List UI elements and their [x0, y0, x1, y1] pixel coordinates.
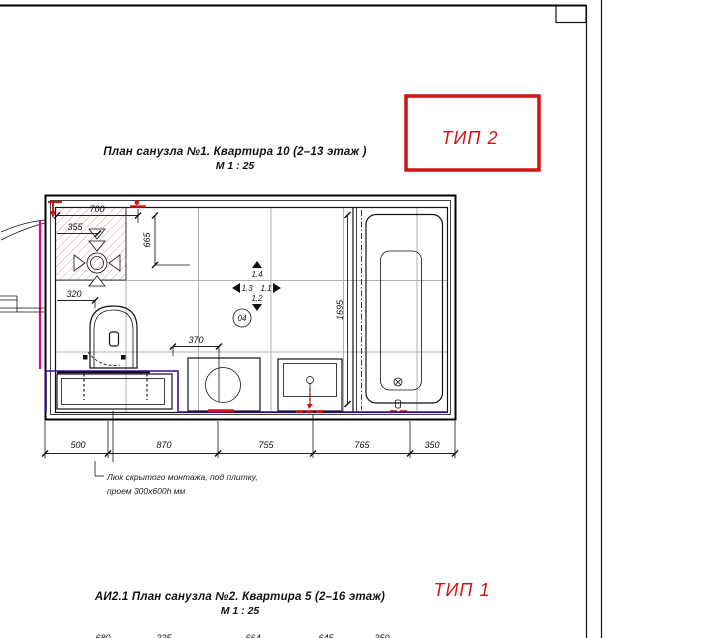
toilet [83, 306, 137, 368]
partial-dim-1: 335 [156, 633, 172, 638]
bottom-dim-350: 350 [424, 440, 439, 450]
left-duct [0, 296, 44, 312]
door-swing [1, 220, 45, 240]
marker-1-1: 1.1 [260, 284, 271, 293]
dim-1695: 1695 [335, 299, 345, 320]
access-hatch-box [57, 372, 172, 409]
node-04-bubble: 04 [233, 309, 251, 327]
type2-badge: ТИП 2 [406, 96, 539, 170]
bottom-dim-765: 765 [354, 440, 370, 450]
bottom-dim-870: 870 [156, 440, 171, 450]
dim-700: 700 [89, 204, 104, 214]
bathtub [366, 215, 443, 412]
node-04-label: 04 [238, 314, 247, 323]
plan2-title-block: АИ2.1 План санузла №2. Квартира 5 (2–16 … [94, 591, 385, 617]
plan1-scale: М 1 : 25 [216, 160, 255, 172]
plan2-title: АИ2.1 План санузла №2. Квартира 5 (2–16 … [94, 591, 385, 603]
marker-1-4: 1.4 [251, 270, 263, 279]
sink [278, 359, 342, 412]
partial-dim-0: 680 [95, 633, 110, 638]
cad-canvas: План санузла №1. Квартира 10 (2–13 этаж … [0, 0, 726, 638]
note-line1: Люк скрытого монтажа, под плитку, [106, 472, 258, 482]
pipe-runs-purple [46, 371, 447, 412]
drawing-sheet: План санузла №1. Квартира 10 (2–13 этаж … [0, 0, 726, 638]
partial-dim-3: 645 [318, 633, 334, 638]
plan1-title-block: План санузла №1. Квартира 10 (2–13 этаж … [103, 146, 366, 172]
dim-370: 370 [188, 335, 203, 345]
type2-label: ТИП 2 [442, 128, 499, 148]
plan2-partial-dims: 680 335 664 645 350 [95, 633, 389, 638]
dim-320: 320 [66, 289, 81, 299]
plan2-scale: М 1 : 25 [221, 605, 260, 617]
frame-corner-box [556, 6, 586, 23]
marker-1-3: 1.3 [241, 284, 253, 293]
sink-tap-icon [307, 377, 314, 410]
bottom-dim-500: 500 [70, 440, 85, 450]
note-line2: проем 300х600h мм [107, 486, 185, 496]
dim-665: 665 [142, 232, 152, 248]
dim-355: 355 [67, 222, 83, 232]
partial-dim-4: 350 [374, 633, 389, 638]
tub-partition [353, 208, 362, 412]
flow-markers: 1.4 1.3 1.1 1.2 [232, 261, 281, 311]
partial-dim-2: 664 [245, 633, 260, 638]
type1-label: ТИП 1 [434, 580, 491, 600]
bottom-dim-755: 755 [258, 440, 274, 450]
plan1-title: План санузла №1. Квартира 10 (2–13 этаж … [103, 146, 366, 158]
marker-1-2: 1.2 [251, 294, 263, 303]
bottom-dimension-chain: 500 870 755 765 350 [42, 414, 458, 458]
